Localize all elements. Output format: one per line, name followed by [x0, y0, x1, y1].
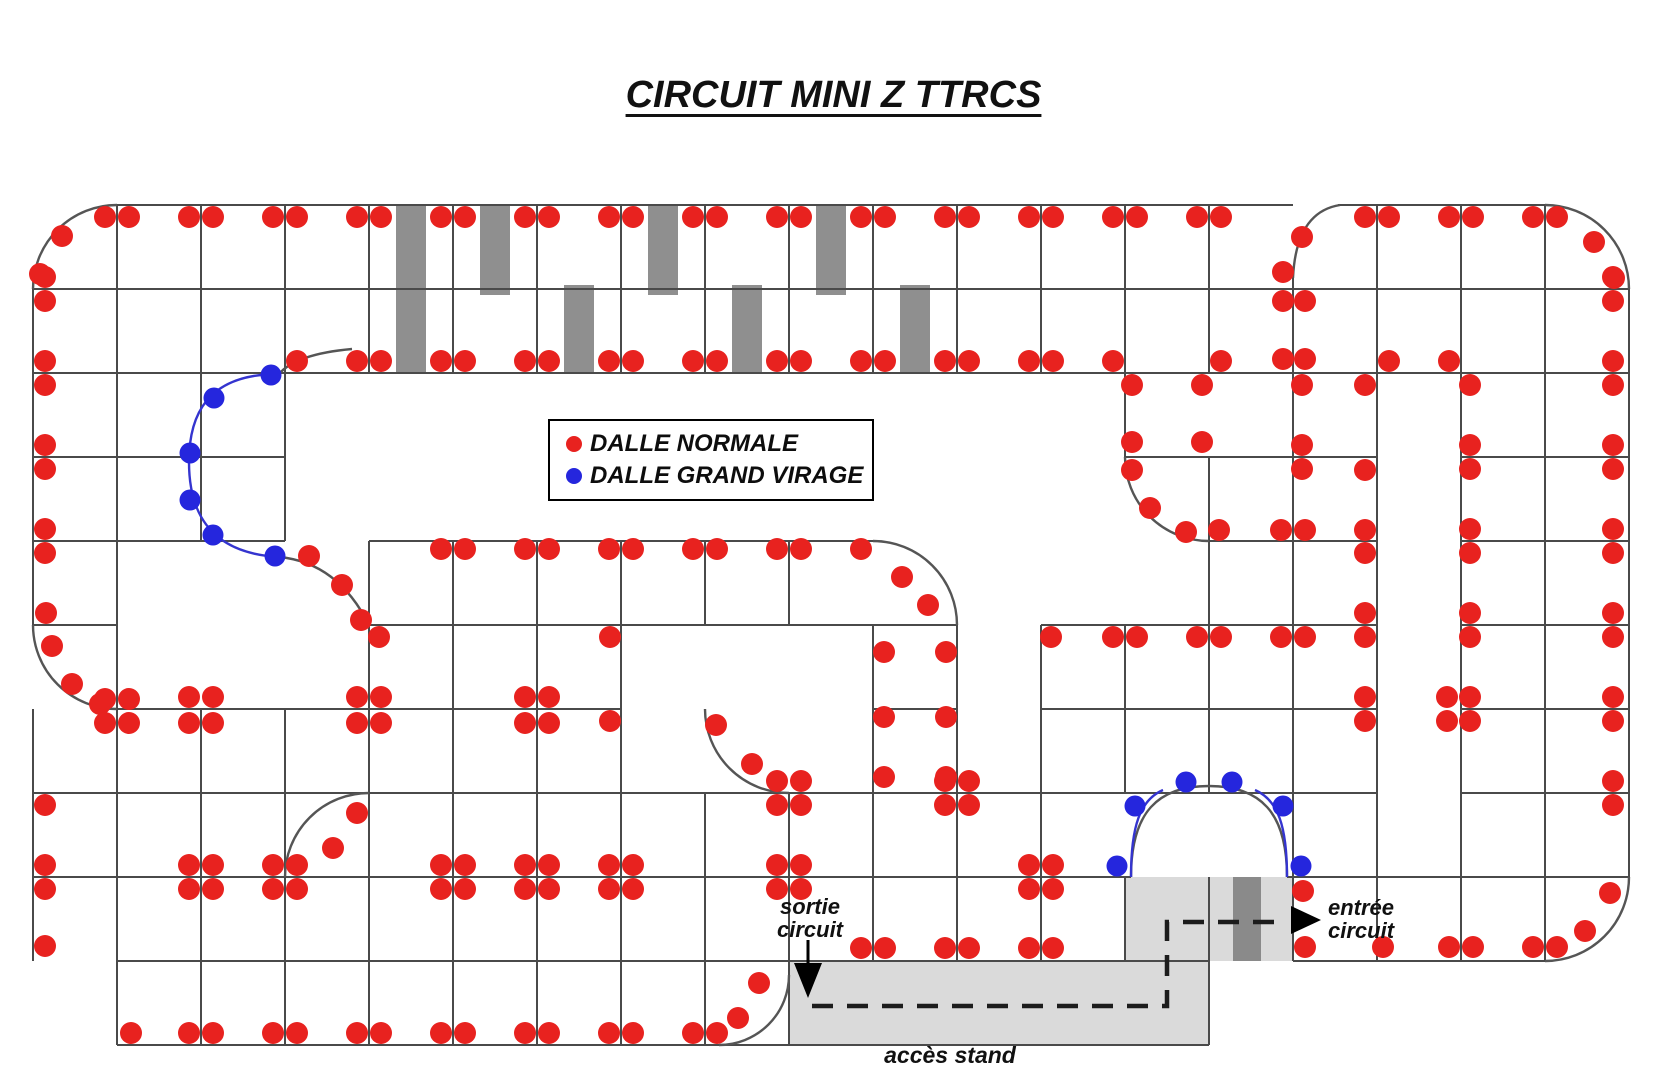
dalle-normale-dot [599, 710, 621, 732]
dalle-normale-dot [514, 878, 536, 900]
dalle-normale-dot [1294, 290, 1316, 312]
dalle-normale-dot [790, 794, 812, 816]
dalle-normale-dot [1546, 206, 1568, 228]
dalle-normale-dot [262, 878, 284, 900]
dalle-normale-dot [202, 1022, 224, 1044]
dalle-normale-dot [370, 1022, 392, 1044]
dalle-normale-dot [622, 538, 644, 560]
legend-label-normal: DALLE NORMALE [590, 430, 798, 458]
dalle-normale-dot [368, 626, 390, 648]
dalle-normale-dot [1378, 206, 1400, 228]
dalle-normale-dot [346, 350, 368, 372]
dalle-normale-dot [350, 609, 372, 631]
dalle-normale-dot [1018, 854, 1040, 876]
dalle-normale-dot [1018, 878, 1040, 900]
gray-bar [900, 285, 930, 373]
dalle-normale-dot [454, 350, 476, 372]
dalle-normale-dot [682, 1022, 704, 1044]
dalle-normale-dot [1602, 458, 1624, 480]
dalle-normale-dot [1191, 431, 1213, 453]
curve-blue [189, 374, 279, 557]
dalle-normale-dot [599, 626, 621, 648]
dalle-normale-dot [748, 972, 770, 994]
dalle-normale-dot [1459, 458, 1481, 480]
dalle-normale-dot [514, 538, 536, 560]
dalle-normale-dot [850, 538, 872, 560]
dalle-normale-dot [1459, 374, 1481, 396]
dalle-normale-dot [1272, 348, 1294, 370]
dalle-normale-dot [850, 350, 872, 372]
dalle-normale-dot [766, 206, 788, 228]
dalle-normale-dot [1126, 206, 1148, 228]
dalle-normale-dot [1602, 518, 1624, 540]
dalle-normale-dot [874, 350, 896, 372]
dalle-normale-dot [94, 688, 116, 710]
dalle-normale-dot [202, 206, 224, 228]
dalle-normale-dot [34, 794, 56, 816]
dalle-normale-dot [1522, 936, 1544, 958]
dalle-normale-dot [1210, 206, 1232, 228]
dalle-normale-dot [1042, 878, 1064, 900]
dalle-normale-dot [538, 350, 560, 372]
entree-arrow-icon [1291, 906, 1321, 934]
dalle-normale-dot [1126, 626, 1148, 648]
dalle-normale-dot [1602, 374, 1624, 396]
dalle-normale-dot [514, 854, 536, 876]
dalle-normale-dot [538, 206, 560, 228]
dalle-normale-dot [622, 854, 644, 876]
dalle-normale-dot [346, 802, 368, 824]
dalle-normale-dot [34, 878, 56, 900]
dalle-normale-dot [1042, 206, 1064, 228]
dalle-normale-dot [1436, 710, 1458, 732]
dalle-normale-dot [622, 350, 644, 372]
dalle-normale-dot [1583, 231, 1605, 253]
dalle-normale-dot [1602, 602, 1624, 624]
dalle-normale-dot [430, 854, 452, 876]
dalle-normale-dot [35, 602, 57, 624]
dalle-normale-dot [286, 206, 308, 228]
dalle-normale-dot [1102, 626, 1124, 648]
dalle-normale-dot [1438, 350, 1460, 372]
red-dot-icon [566, 436, 582, 452]
dalle-normale-dot [790, 206, 812, 228]
dalle-normale-dot [1121, 459, 1143, 481]
dalle-normale-dot [1102, 206, 1124, 228]
dalle-normale-dot [1186, 206, 1208, 228]
dalle-normale-dot [454, 206, 476, 228]
dalle-normale-dot [1175, 521, 1197, 543]
gray-bar [564, 285, 594, 373]
curve [873, 541, 957, 625]
dalle-normale-dot [34, 854, 56, 876]
dalle-normale-dot [682, 538, 704, 560]
dalle-normale-dot [262, 854, 284, 876]
dalle-normale-dot [873, 766, 895, 788]
dalle-normale-dot [1018, 350, 1040, 372]
dalle-normale-dot [1354, 602, 1376, 624]
dalle-normale-dot [514, 206, 536, 228]
dalle-normale-dot [262, 1022, 284, 1044]
dalle-normale-dot [34, 374, 56, 396]
dalle-normale-dot [1354, 206, 1376, 228]
dalle-normale-dot [178, 206, 200, 228]
gray-bar [732, 285, 762, 373]
dalle-normale-dot [34, 350, 56, 372]
dalle-normale-dot [850, 206, 872, 228]
dalle-normale-dot [790, 350, 812, 372]
dalle-normale-dot [1270, 519, 1292, 541]
dalle-normale-dot [34, 434, 56, 456]
dalle-grand-virage-dot [1107, 856, 1128, 877]
dalle-normale-dot [430, 206, 452, 228]
pit-area [789, 961, 1209, 1045]
dalle-normale-dot [1602, 686, 1624, 708]
dalle-grand-virage-dot [265, 546, 286, 567]
dalle-normale-dot [1042, 350, 1064, 372]
dalle-normale-dot [1599, 882, 1621, 904]
dalle-normale-dot [1291, 374, 1313, 396]
dalle-normale-dot [202, 712, 224, 734]
dalle-normale-dot [790, 854, 812, 876]
legend-item-grand-virage: DALLE GRAND VIRAGE [550, 462, 872, 490]
dalle-normale-dot [682, 350, 704, 372]
dalle-normale-dot [766, 770, 788, 792]
circuit-diagram-page: CIRCUIT MINI Z TTRCS DALLE NORMALE DALLE… [0, 0, 1667, 1080]
sortie-circuit-label: sortie circuit [742, 896, 878, 942]
dalle-normale-dot [1354, 710, 1376, 732]
dalle-normale-dot [370, 350, 392, 372]
dalle-normale-dot [370, 686, 392, 708]
dalle-normale-dot [370, 206, 392, 228]
dalle-normale-dot [370, 712, 392, 734]
dalle-normale-dot [331, 574, 353, 596]
dalle-normale-dot [1378, 350, 1400, 372]
dalle-normale-dot [1602, 350, 1624, 372]
dalle-normale-dot [61, 673, 83, 695]
dalle-normale-dot [1602, 266, 1624, 288]
dalle-normale-dot [598, 1022, 620, 1044]
dalle-normale-dot [94, 206, 116, 228]
legend-item-normal: DALLE NORMALE [550, 430, 872, 458]
dalle-normale-dot [1354, 626, 1376, 648]
dalle-normale-dot [286, 350, 308, 372]
dalle-normale-dot [298, 545, 320, 567]
dalle-normale-dot [934, 350, 956, 372]
dalle-normale-dot [94, 712, 116, 734]
gray-bar [816, 205, 846, 295]
dalle-normale-dot [1042, 854, 1064, 876]
dalle-normale-dot [202, 854, 224, 876]
dalle-normale-dot [514, 712, 536, 734]
dalle-normale-dot [891, 566, 913, 588]
dalle-normale-dot [262, 206, 284, 228]
dalle-normale-dot [706, 350, 728, 372]
dalle-grand-virage-dot [1125, 796, 1146, 817]
dalle-normale-dot [51, 225, 73, 247]
dalle-normale-dot [598, 854, 620, 876]
dalle-grand-virage-dot [261, 365, 282, 386]
dalle-normale-dot [514, 350, 536, 372]
pit-area [1233, 877, 1261, 961]
dalle-normale-dot [766, 854, 788, 876]
dalle-normale-dot [1294, 626, 1316, 648]
dalle-normale-dot [34, 518, 56, 540]
acces-stand-label: accès stand [840, 1044, 1060, 1068]
dalle-normale-dot [1042, 937, 1064, 959]
dalle-normale-dot [1272, 261, 1294, 283]
dalle-normale-dot [454, 538, 476, 560]
dalle-normale-dot [1272, 290, 1294, 312]
dalle-normale-dot [1459, 518, 1481, 540]
dalle-normale-dot [934, 206, 956, 228]
dalle-normale-dot [874, 206, 896, 228]
dalle-normale-dot [727, 1007, 749, 1029]
dalle-normale-dot [1354, 459, 1376, 481]
dalle-normale-dot [1602, 710, 1624, 732]
dalle-grand-virage-dot [180, 443, 201, 464]
dalle-normale-dot [430, 878, 452, 900]
dalle-grand-virage-dot [1273, 796, 1294, 817]
dalle-normale-dot [346, 1022, 368, 1044]
page-title: CIRCUIT MINI Z TTRCS [0, 76, 1667, 116]
dalle-normale-dot [430, 1022, 452, 1044]
dalle-normale-dot [1210, 626, 1232, 648]
dalle-normale-dot [1459, 686, 1481, 708]
dalle-normale-dot [1121, 374, 1143, 396]
dalle-normale-dot [1294, 348, 1316, 370]
dalle-normale-dot [682, 206, 704, 228]
dalle-normale-dot [430, 350, 452, 372]
dalle-grand-virage-dot [204, 388, 225, 409]
dalle-normale-dot [958, 206, 980, 228]
dalle-normale-dot [1294, 936, 1316, 958]
dalle-normale-dot [1102, 350, 1124, 372]
dalle-grand-virage-dot [180, 490, 201, 511]
dalle-normale-dot [346, 686, 368, 708]
dalle-normale-dot [1354, 374, 1376, 396]
dalle-normale-dot [322, 837, 344, 859]
dalle-normale-dot [622, 1022, 644, 1044]
dalle-normale-dot [34, 935, 56, 957]
dalle-normale-dot [454, 1022, 476, 1044]
dalle-normale-dot [790, 770, 812, 792]
dalle-normale-dot [958, 770, 980, 792]
dalle-normale-dot [705, 714, 727, 736]
dalle-normale-dot [286, 1022, 308, 1044]
dalle-normale-dot [706, 206, 728, 228]
dalle-normale-dot [1139, 497, 1161, 519]
dalle-normale-dot [1191, 374, 1213, 396]
dalle-normale-dot [118, 688, 140, 710]
dalle-normale-dot [34, 542, 56, 564]
curve [1131, 786, 1287, 877]
dalle-normale-dot [1459, 602, 1481, 624]
dalle-normale-dot [538, 854, 560, 876]
dalle-normale-dot [514, 1022, 536, 1044]
dalle-normale-dot [1574, 920, 1596, 942]
dalle-normale-dot [34, 290, 56, 312]
dalle-normale-dot [538, 1022, 560, 1044]
dalle-normale-dot [286, 854, 308, 876]
dalle-normale-dot [514, 686, 536, 708]
dalle-normale-dot [1121, 431, 1143, 453]
dalle-normale-dot [935, 641, 957, 663]
dalle-normale-dot [622, 206, 644, 228]
dalle-normale-dot [766, 538, 788, 560]
dalle-normale-dot [958, 350, 980, 372]
dalle-normale-dot [598, 878, 620, 900]
dalle-normale-dot [118, 712, 140, 734]
dalle-normale-dot [1602, 290, 1624, 312]
dalle-normale-dot [958, 794, 980, 816]
dalle-normale-dot [622, 878, 644, 900]
dalle-normale-dot [1462, 936, 1484, 958]
gray-bar [648, 205, 678, 295]
dalle-normale-dot [34, 266, 56, 288]
dalle-normale-dot [1291, 434, 1313, 456]
dalle-normale-dot [1602, 770, 1624, 792]
dalle-normale-dot [873, 706, 895, 728]
dalle-normale-dot [1354, 542, 1376, 564]
dalle-normale-dot [430, 538, 452, 560]
dalle-normale-dot [934, 937, 956, 959]
dalle-normale-dot [958, 937, 980, 959]
gray-bar [480, 205, 510, 295]
dalle-normale-dot [120, 1022, 142, 1044]
dalle-normale-dot [1018, 206, 1040, 228]
legend-label-grand-virage: DALLE GRAND VIRAGE [590, 462, 863, 490]
dalle-grand-virage-dot [1222, 772, 1243, 793]
dalle-normale-dot [1438, 206, 1460, 228]
dalle-normale-dot [1354, 519, 1376, 541]
dalle-normale-dot [1602, 542, 1624, 564]
dalle-normale-dot [598, 206, 620, 228]
dalle-normale-dot [34, 458, 56, 480]
dalle-normale-dot [1522, 206, 1544, 228]
dalle-normale-dot [538, 712, 560, 734]
dalle-normale-dot [598, 350, 620, 372]
dalle-grand-virage-dot [203, 525, 224, 546]
dalle-grand-virage-dot [1176, 772, 1197, 793]
dalle-normale-dot [598, 538, 620, 560]
dalle-normale-dot [538, 686, 560, 708]
dalle-normale-dot [1186, 626, 1208, 648]
dalle-normale-dot [790, 538, 812, 560]
dalle-normale-dot [454, 878, 476, 900]
dalle-normale-dot [1459, 434, 1481, 456]
dalle-normale-dot [1462, 206, 1484, 228]
dalle-normale-dot [1546, 936, 1568, 958]
dalle-normale-dot [178, 712, 200, 734]
dalle-normale-dot [202, 878, 224, 900]
dalle-normale-dot [178, 686, 200, 708]
dalle-normale-dot [1459, 710, 1481, 732]
dalle-normale-dot [118, 206, 140, 228]
dalle-normale-dot [706, 1022, 728, 1044]
dalle-normale-dot [1291, 226, 1313, 248]
dalle-normale-dot [917, 594, 939, 616]
dalle-normale-dot [1294, 519, 1316, 541]
blue-dot-icon [566, 468, 582, 484]
dalle-normale-dot [41, 635, 63, 657]
dalle-normale-dot [178, 854, 200, 876]
dalle-normale-dot [202, 686, 224, 708]
dalle-normale-dot [1354, 686, 1376, 708]
dalle-normale-dot [1292, 880, 1314, 902]
dalle-normale-dot [454, 854, 476, 876]
dalle-normale-dot [1210, 350, 1232, 372]
legend-box: DALLE NORMALE DALLE GRAND VIRAGE [548, 419, 874, 501]
dalle-normale-dot [178, 1022, 200, 1044]
dalle-normale-dot [346, 712, 368, 734]
dalle-normale-dot [1040, 626, 1062, 648]
dalle-normale-dot [538, 878, 560, 900]
dalle-normale-dot [1459, 542, 1481, 564]
dalle-normale-dot [1602, 794, 1624, 816]
dalle-normale-dot [1208, 519, 1230, 541]
dalle-normale-dot [741, 753, 763, 775]
dalle-normale-dot [934, 770, 956, 792]
dalle-normale-dot [1459, 626, 1481, 648]
dalle-normale-dot [1436, 686, 1458, 708]
dalle-normale-dot [1602, 434, 1624, 456]
dalle-normale-dot [873, 641, 895, 663]
dalle-grand-virage-dot [1291, 856, 1312, 877]
dalle-normale-dot [178, 878, 200, 900]
dalle-normale-dot [286, 878, 308, 900]
entree-circuit-label: entrée circuit [1328, 897, 1448, 943]
dalle-normale-dot [1018, 937, 1040, 959]
dalle-normale-dot [766, 794, 788, 816]
dalle-normale-dot [1291, 458, 1313, 480]
dalle-normale-dot [1270, 626, 1292, 648]
dalle-normale-dot [346, 206, 368, 228]
dalle-normale-dot [935, 706, 957, 728]
dalle-normale-dot [1602, 626, 1624, 648]
dalle-normale-dot [706, 538, 728, 560]
dalle-normale-dot [934, 794, 956, 816]
dalle-normale-dot [766, 350, 788, 372]
dalle-normale-dot [538, 538, 560, 560]
